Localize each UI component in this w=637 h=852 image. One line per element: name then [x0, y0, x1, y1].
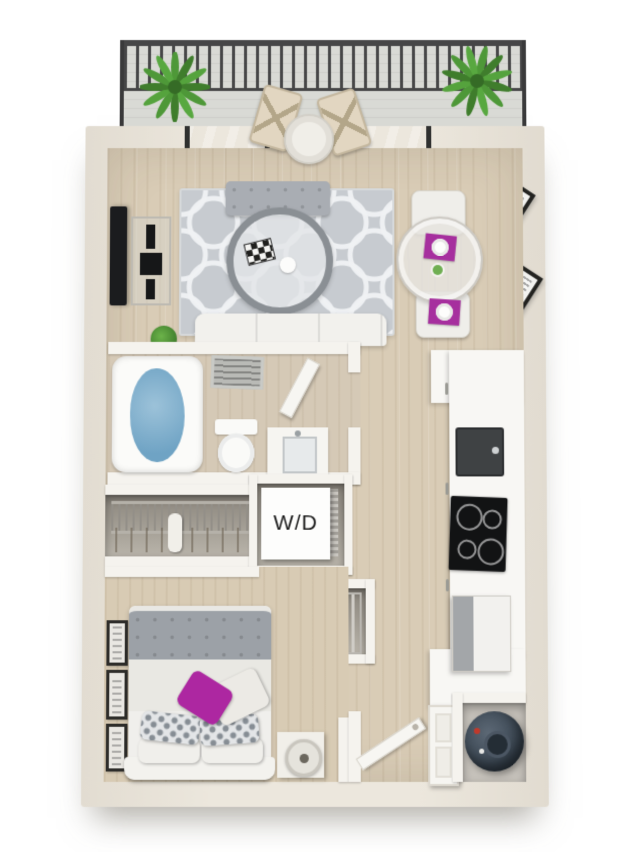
bistro-table — [284, 114, 334, 164]
floorplan-3d-scene: W/D — [0, 0, 637, 835]
bistro-layer — [0, 0, 637, 852]
plan-perspective-wrap: W/D — [0, 0, 637, 852]
